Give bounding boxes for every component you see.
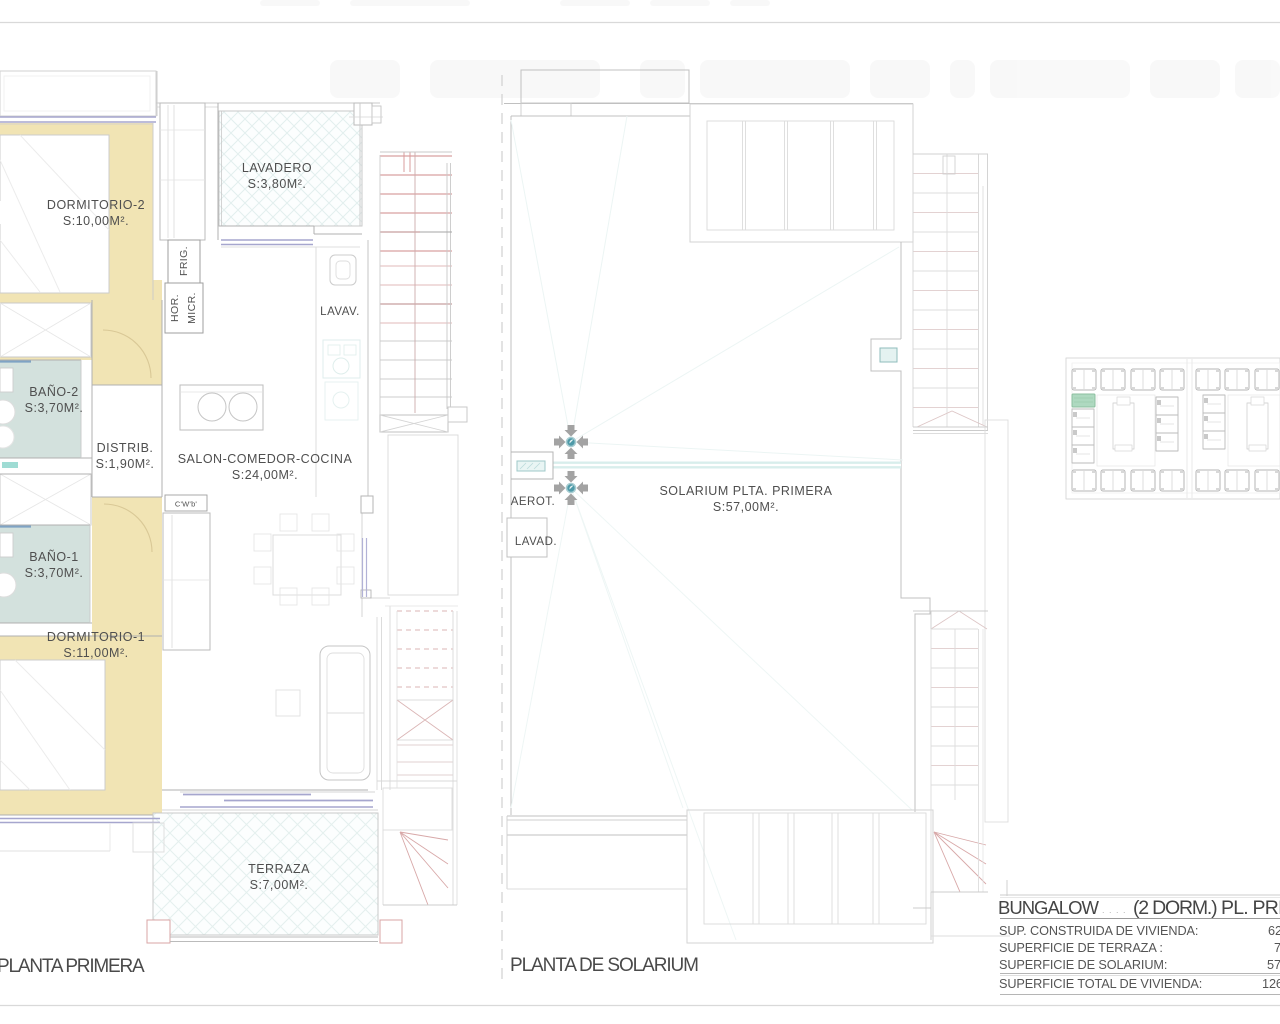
svg-text:SUPERFICIE DE TERRAZA :: SUPERFICIE DE TERRAZA :	[999, 941, 1163, 955]
svg-text:S:57,00M².: S:57,00M².	[713, 500, 779, 514]
svg-text:LAVAV.: LAVAV.	[320, 306, 360, 318]
svg-text:FRIG.: FRIG.	[178, 246, 190, 276]
svg-text:S:7,00M².: S:7,00M².	[250, 878, 309, 892]
svg-text:MICR.: MICR.	[186, 292, 198, 324]
svg-text:S:3,70M².: S:3,70M².	[25, 401, 84, 415]
svg-text:AEROT.: AEROT.	[511, 496, 556, 508]
svg-text:S:3,80M².: S:3,80M².	[248, 177, 307, 191]
svg-text:126,70: 126,70	[1262, 977, 1280, 991]
svg-text:PLANTA DE SOLARIUM: PLANTA DE SOLARIUM	[510, 955, 698, 976]
svg-text:S:10,00M².: S:10,00M².	[63, 214, 129, 228]
svg-text:S:11,00M².: S:11,00M².	[63, 646, 128, 660]
svg-text:C'W'b': C'W'b'	[175, 500, 198, 509]
svg-text:SOLARIUM PLTA. PRIMERA: SOLARIUM PLTA. PRIMERA	[659, 484, 832, 498]
svg-text:S:1,90M².: S:1,90M².	[96, 457, 155, 471]
svg-text:TERRAZA: TERRAZA	[248, 862, 310, 876]
svg-text:SUP. CONSTRUIDA DE VIVIENDA:: SUP. CONSTRUIDA DE VIVIENDA:	[999, 924, 1198, 938]
svg-text:SALON-COMEDOR-COCINA: SALON-COMEDOR-COCINA	[178, 452, 353, 466]
svg-text:DORMITORIO-2: DORMITORIO-2	[47, 198, 145, 212]
svg-text:BAÑO-2: BAÑO-2	[29, 385, 79, 399]
svg-text:DISTRIB.: DISTRIB.	[97, 441, 154, 455]
svg-text:BUNGALOW: BUNGALOW	[998, 897, 1099, 918]
svg-text:PLANTA PRIMERA: PLANTA PRIMERA	[0, 956, 145, 977]
svg-text:HOR.: HOR.	[169, 294, 181, 322]
svg-text:. . . .: . . . .	[1102, 905, 1127, 915]
svg-text:57,00: 57,00	[1267, 958, 1280, 972]
svg-text:S:3,70M².: S:3,70M².	[25, 566, 84, 580]
svg-text:PL. PRIMERA: PL. PRIMERA	[1221, 897, 1280, 919]
svg-text:SUPERFICIE DE SOLARIUM:: SUPERFICIE DE SOLARIUM:	[999, 958, 1167, 972]
svg-text:7,00: 7,00	[1274, 941, 1280, 955]
svg-text:LAVAD.: LAVAD.	[515, 536, 557, 548]
svg-text:DORMITORIO-1: DORMITORIO-1	[47, 630, 145, 644]
svg-text:BAÑO-1: BAÑO-1	[29, 550, 79, 564]
svg-text:(2 DORM.): (2 DORM.)	[1133, 897, 1217, 919]
svg-text:SUPERFICIE TOTAL DE VIVIENDA:: SUPERFICIE TOTAL DE VIVIENDA:	[999, 977, 1202, 991]
svg-text:S:24,00M².: S:24,00M².	[232, 468, 298, 482]
svg-text:LAVADERO: LAVADERO	[242, 161, 312, 175]
svg-text:62,70: 62,70	[1268, 924, 1280, 938]
